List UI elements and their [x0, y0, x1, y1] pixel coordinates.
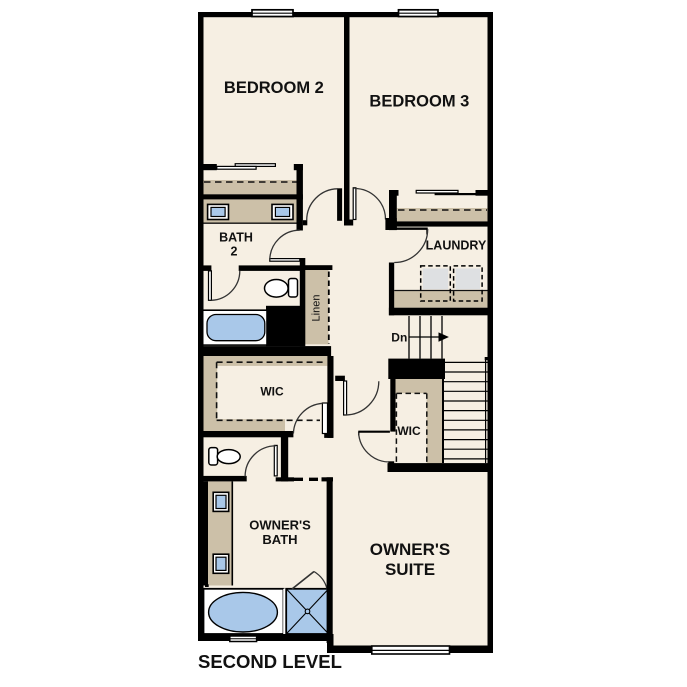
svg-text:BEDROOM 3: BEDROOM 3	[369, 93, 469, 111]
svg-text:OWNER'S: OWNER'S	[370, 540, 451, 559]
svg-text:BATH: BATH	[219, 231, 253, 245]
svg-text:WIC: WIC	[260, 385, 284, 399]
svg-text:BATH: BATH	[262, 532, 297, 547]
svg-text:SECOND LEVEL: SECOND LEVEL	[198, 651, 342, 672]
svg-text:OWNER'S: OWNER'S	[249, 518, 311, 533]
svg-text:SUITE: SUITE	[385, 560, 435, 579]
svg-text:2: 2	[231, 245, 238, 259]
svg-text:LAUNDRY: LAUNDRY	[426, 238, 487, 252]
svg-text:Linen: Linen	[311, 295, 323, 322]
svg-text:BEDROOM 2: BEDROOM 2	[224, 79, 324, 97]
svg-text:WIC: WIC	[397, 424, 421, 438]
svg-text:Dn: Dn	[391, 330, 407, 344]
